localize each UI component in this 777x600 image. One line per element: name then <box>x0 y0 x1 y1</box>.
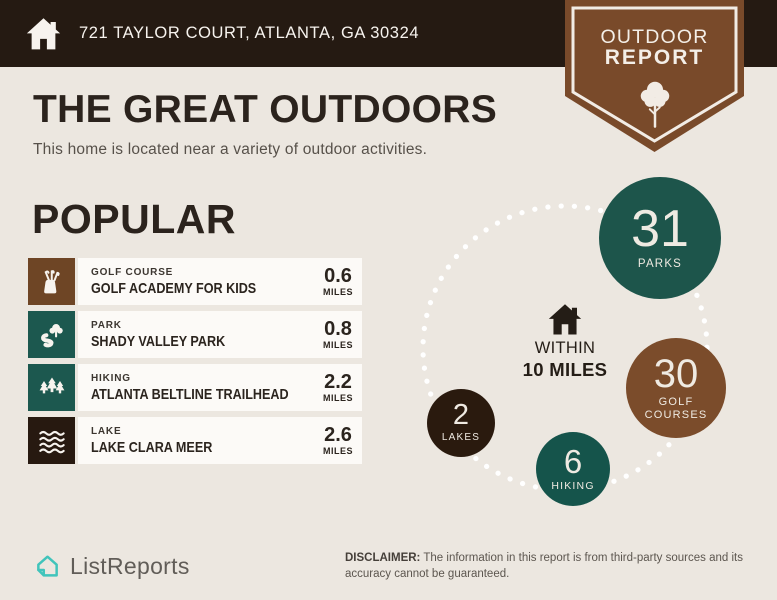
waves-icon <box>28 417 75 464</box>
stat-label: LAKES <box>442 432 480 444</box>
outdoor-report-page: 721 TAYLOR COURT, ATLANTA, GA 30324 OUTD… <box>0 0 777 600</box>
radius-caption: WITHIN 10 MILES <box>505 339 625 381</box>
item-category: GOLF COURSE <box>91 267 323 278</box>
item-name: ATLANTA BELTLINE TRAILHEAD <box>91 386 286 403</box>
distance-unit: MILES <box>323 288 353 297</box>
distance-value: 2.6 <box>323 425 353 445</box>
list-item-hiking: HIKING ATLANTA BELTLINE TRAILHEAD 2.2 MI… <box>28 364 362 411</box>
item-distance: 2.2 MILES <box>323 372 353 403</box>
distance-unit: MILES <box>323 394 353 403</box>
item-name: SHADY VALLEY PARK <box>91 333 286 350</box>
radius-caption-line1: WITHIN <box>505 339 625 358</box>
disclaimer-label: DISCLAIMER: <box>345 552 420 564</box>
stat-bubble-hiking: 6 HIKING <box>536 432 610 506</box>
badge-title-line2: REPORT <box>565 46 744 70</box>
distance-unit: MILES <box>323 341 353 350</box>
distance-value: 2.2 <box>323 372 353 392</box>
stat-value: 30 <box>654 355 699 393</box>
disclaimer-text: DISCLAIMER: The information in this repo… <box>345 551 765 582</box>
stat-label: GOLF COURSES <box>640 396 712 421</box>
stat-bubble-golf-courses: 30 GOLF COURSES <box>626 338 726 438</box>
stat-label: HIKING <box>551 480 594 492</box>
tree-icon <box>636 79 674 131</box>
page-subtitle: This home is located near a variety of o… <box>33 141 427 159</box>
item-category: LAKE <box>91 426 323 437</box>
stat-value: 31 <box>631 205 689 254</box>
stat-bubble-parks: 31 PARKS <box>599 177 721 299</box>
item-category: PARK <box>91 320 323 331</box>
list-item-golf-course: GOLF COURSE GOLF ACADEMY FOR KIDS 0.6 MI… <box>28 258 362 305</box>
stat-value: 6 <box>564 446 582 477</box>
stat-bubble-lakes: 2 LAKES <box>427 389 495 457</box>
page-title: THE GREAT OUTDOORS <box>33 89 497 132</box>
list-item-panel: LAKE LAKE CLARA MEER 2.6 MILES <box>78 417 362 464</box>
list-item-panel: PARK SHADY VALLEY PARK 0.8 MILES <box>78 311 362 358</box>
home-icon-center <box>547 303 583 336</box>
golf-bag-icon <box>28 258 75 305</box>
stat-label: PARKS <box>638 258 682 271</box>
popular-list: GOLF COURSE GOLF ACADEMY FOR KIDS 0.6 MI… <box>28 258 362 464</box>
home-icon <box>25 17 62 51</box>
list-item-panel: HIKING ATLANTA BELTLINE TRAILHEAD 2.2 MI… <box>78 364 362 411</box>
distance-value: 0.6 <box>323 266 353 286</box>
item-distance: 2.6 MILES <box>323 425 353 456</box>
outdoor-report-badge: OUTDOOR REPORT <box>565 0 744 153</box>
list-item-park: PARK SHADY VALLEY PARK 0.8 MILES <box>28 311 362 358</box>
brand-name: ListReports <box>70 553 190 580</box>
list-item-lake: LAKE LAKE CLARA MEER 2.6 MILES <box>28 417 362 464</box>
distance-value: 0.8 <box>323 319 353 339</box>
item-name: GOLF ACADEMY FOR KIDS <box>91 280 286 297</box>
distance-unit: MILES <box>323 447 353 456</box>
item-distance: 0.8 MILES <box>323 319 353 350</box>
pine-trees-icon <box>28 364 75 411</box>
stat-value: 2 <box>453 402 469 430</box>
item-category: HIKING <box>91 373 323 384</box>
item-distance: 0.6 MILES <box>323 266 353 297</box>
list-item-panel: GOLF COURSE GOLF ACADEMY FOR KIDS 0.6 MI… <box>78 258 362 305</box>
item-name: LAKE CLARA MEER <box>91 439 286 456</box>
listreports-logo: ListReports <box>34 553 190 580</box>
park-tree-icon <box>28 311 75 358</box>
property-address: 721 TAYLOR COURT, ATLANTA, GA 30324 <box>79 24 419 43</box>
section-title-popular: POPULAR <box>32 199 236 240</box>
radius-caption-line2: 10 MILES <box>505 359 625 381</box>
listreports-house-icon <box>34 553 61 580</box>
